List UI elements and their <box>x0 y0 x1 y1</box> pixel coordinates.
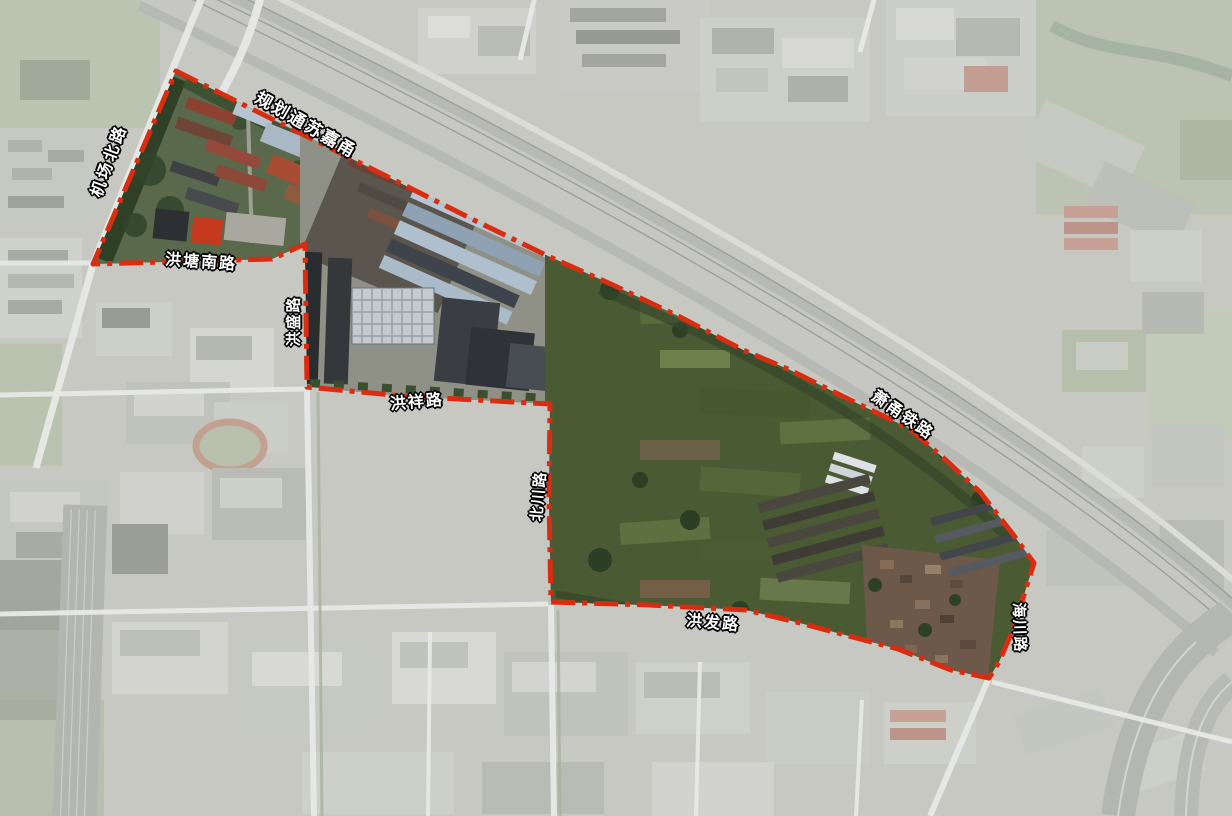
satellite-planning-map: 机场北路 规划通苏嘉甬 洪塘南路 洪盛路 洪祥路 北川路 洪发路 海川路 萧甬铁… <box>0 0 1232 816</box>
satellite-basemap <box>0 0 1232 816</box>
grid-roof-building <box>352 288 434 344</box>
